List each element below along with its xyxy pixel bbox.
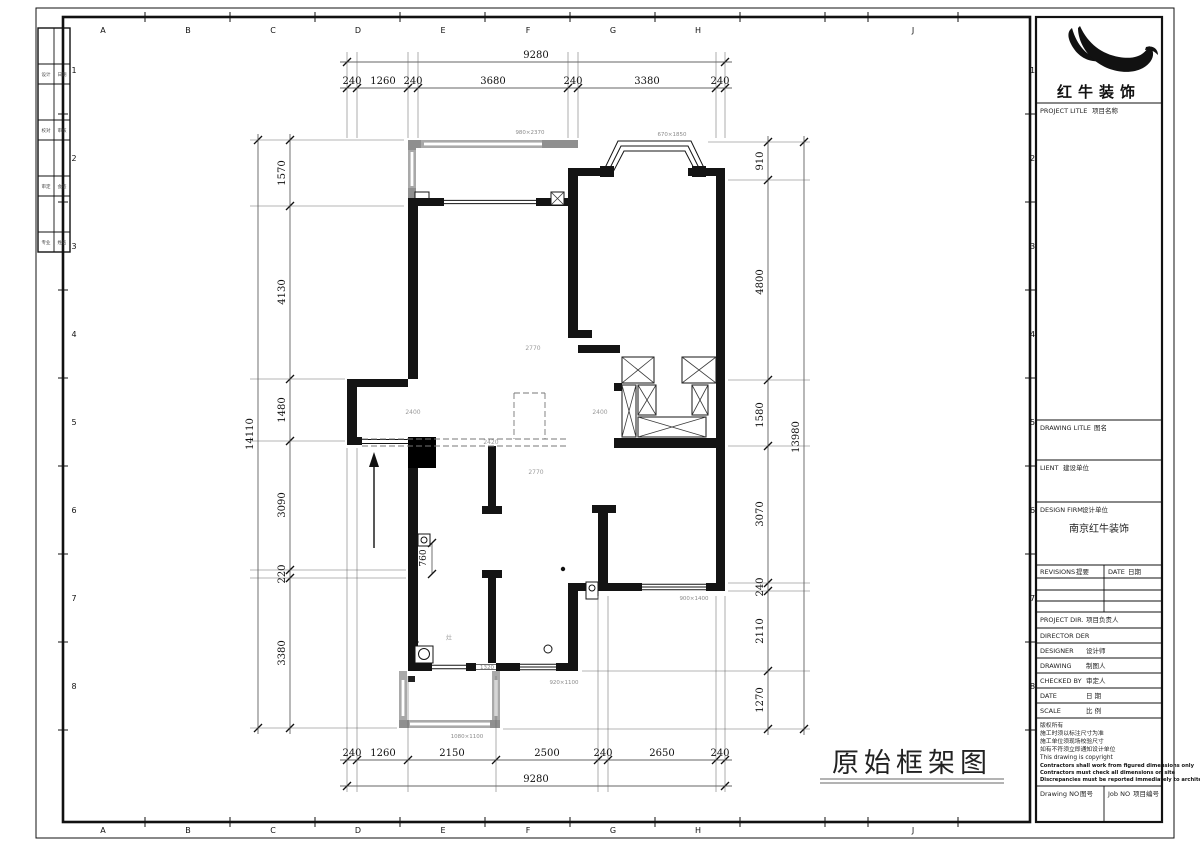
tb-label: Job NO xyxy=(1107,790,1130,798)
grid-numbers-left: 12345678 xyxy=(71,66,76,691)
signoff-cell: 校对 xyxy=(42,127,51,134)
beam-dashed-lines xyxy=(362,393,568,446)
window-label: 1080×1100 xyxy=(451,734,484,740)
entry-arrow-icon xyxy=(369,452,379,548)
tb-label: 制图人 xyxy=(1086,661,1106,670)
grid-letter: A xyxy=(100,826,106,835)
grid-number: 4 xyxy=(71,330,76,339)
small-block xyxy=(408,676,415,682)
signoff-cell: 专业 xyxy=(42,239,51,246)
grid-letters-bottom: A B C D E F G H J xyxy=(100,826,914,835)
copyright-line: Discrepancies must be reported immediate… xyxy=(1040,777,1200,783)
grid-letter: B xyxy=(185,26,191,35)
tb-label: LIENT xyxy=(1040,464,1059,472)
copyright-line: 施工单位须现场校验尺寸 xyxy=(1040,737,1104,745)
window-label: 980×2370 xyxy=(515,130,545,136)
tb-label: REVISIONS xyxy=(1040,568,1075,576)
copyright-line: 如有不符须立即通知设计单位 xyxy=(1040,745,1116,753)
dim-label: 240 xyxy=(710,76,729,87)
grid-letter: F xyxy=(526,826,531,835)
tb-label: DATE xyxy=(1108,568,1125,576)
tb-label: 比 例 xyxy=(1086,706,1101,715)
grid-letter: E xyxy=(440,26,445,35)
room-dim-label: 2770 xyxy=(528,469,543,476)
dim-label: 240 xyxy=(563,76,582,87)
dim-label: 3090 xyxy=(277,492,288,517)
grid-letters-top: A B C D E F G H J xyxy=(100,26,914,35)
tb-label: SCALE xyxy=(1040,707,1061,715)
tb-project-title-row: PROJECT LITLE 项目名称 xyxy=(1040,106,1119,115)
gas-meter-icon xyxy=(418,534,430,546)
concrete-column xyxy=(408,437,436,468)
grid-letter: A xyxy=(100,26,106,35)
room-dim-label: 2770 xyxy=(525,345,540,352)
dim-label: 240 xyxy=(755,577,766,596)
point-mark xyxy=(416,641,419,644)
room-dim-label: 2420 xyxy=(483,439,498,446)
grid-number: 5 xyxy=(71,418,76,427)
window-label: 920×1100 xyxy=(549,680,579,686)
sheet-borders xyxy=(36,8,1174,838)
dim-label: 910 xyxy=(755,151,766,170)
dim-label: 4800 xyxy=(755,269,766,294)
copyright-line: This drawing is copyright xyxy=(1039,755,1114,761)
duct-shaft xyxy=(614,357,716,437)
room-dim-label: 2400 xyxy=(592,409,607,416)
dim-label: 2650 xyxy=(649,748,674,759)
drawing-sheet: { "main_title": "原始框架图", "sheet": { "col… xyxy=(0,0,1200,844)
copyright-line: Contractors must check all dimensions on… xyxy=(1040,770,1176,776)
tb-label: 项目负责人 xyxy=(1086,615,1119,624)
tb-revisions-header: REVISIONS 提要 DATE 日期 xyxy=(1040,567,1142,576)
sink-icon xyxy=(415,646,433,663)
tb-label: 设计师 xyxy=(1086,646,1106,655)
tb-label: 日期 xyxy=(1128,568,1142,576)
tb-label: DRAWING xyxy=(1040,662,1072,670)
dim-label: 1270 xyxy=(755,687,766,712)
grid-number: 6 xyxy=(71,506,76,515)
dim-label: 2110 xyxy=(755,618,766,643)
tb-label: 图号 xyxy=(1080,790,1094,798)
grid-number: 4 xyxy=(1030,330,1035,339)
grid-letter: D xyxy=(355,826,361,835)
tb-label: 图名 xyxy=(1094,423,1107,432)
tb-label: 设计单位 xyxy=(1082,505,1109,514)
signoff-cell: 审核 xyxy=(58,127,67,134)
grid-letter: C xyxy=(270,826,276,835)
copyright-line: 施工时须以标注尺寸为准 xyxy=(1040,729,1104,737)
dim-label: 240 xyxy=(342,748,361,759)
copyright-line: 版权所有 xyxy=(1040,721,1063,729)
grid-number: 2 xyxy=(71,154,76,163)
meter-box-icon xyxy=(586,582,598,599)
dim-label: 240 xyxy=(593,748,612,759)
tb-label: 项目名称 xyxy=(1092,106,1119,115)
floor-drain-icon xyxy=(544,645,552,653)
tb-label: DATE xyxy=(1040,692,1057,700)
grid-number: 8 xyxy=(71,682,76,691)
grid-number: 7 xyxy=(71,594,76,603)
design-firm-name: 南京红牛装饰 xyxy=(1069,522,1129,535)
tb-label: DESIGN FIRM xyxy=(1040,506,1083,514)
room-dim-label: 2400 xyxy=(405,409,420,416)
tb-number-row: Drawing NO 图号 Job NO 项目编号 xyxy=(1040,789,1160,798)
title-block: 红牛装饰 PROJECT LITLE 项目名称 DRAWING LITLE 图名 xyxy=(1036,26,1200,822)
dim-label: 9280 xyxy=(523,774,548,785)
signoff-cell: 审定 xyxy=(42,183,51,190)
grid-ticks xyxy=(58,12,1035,827)
kitchen-mark: 灶 xyxy=(446,634,452,642)
floor-plan: 760 980×2370 670×1850 900×1400 920×1100 … xyxy=(245,50,810,792)
drawing-main-title: 原始框架图 xyxy=(820,748,1004,783)
dim-label: 1480 xyxy=(277,397,288,422)
page-title: 原始框架图 xyxy=(832,748,992,779)
tb-label: 建设单位 xyxy=(1063,463,1090,472)
dim-label: 240 xyxy=(342,76,361,87)
grid-letter: J xyxy=(911,826,914,835)
dim-label: 9280 xyxy=(523,50,548,61)
dim-label: 760 xyxy=(419,549,429,566)
grid-letter: B xyxy=(185,826,191,835)
dim-label: 240 xyxy=(710,748,729,759)
dimension-lines xyxy=(250,52,810,792)
tb-client-row: LIENT 建设单位 xyxy=(1040,463,1090,472)
dim-label: 3680 xyxy=(480,76,505,87)
grid-number: 2 xyxy=(1030,154,1035,163)
grid-number: 5 xyxy=(1030,418,1035,427)
point-mark xyxy=(561,567,565,571)
dim-label: 1580 xyxy=(755,402,766,427)
grid-letter: G xyxy=(610,26,616,35)
signoff-cell: 会签 xyxy=(58,183,67,190)
grid-letter: H xyxy=(695,26,701,35)
dim-label: 4130 xyxy=(277,279,288,304)
signoff-cell: 姓名 xyxy=(58,239,67,246)
plan-symbols: 760 xyxy=(369,452,598,682)
grid-letter: J xyxy=(911,26,914,35)
grid-number: 6 xyxy=(1030,506,1035,515)
tb-label: CHECKED BY xyxy=(1040,677,1082,685)
tb-label: 项目编号 xyxy=(1133,789,1160,798)
grid-letter: F xyxy=(526,26,531,35)
drawing-frame xyxy=(63,17,1030,822)
grid-number: 1 xyxy=(71,66,76,75)
tb-label: 日 期 xyxy=(1086,692,1102,700)
tb-label: DESIGNER xyxy=(1040,647,1074,655)
grid-letter: E xyxy=(440,826,445,835)
title-block-frame xyxy=(1036,17,1162,822)
redbull-logo-icon xyxy=(1068,26,1158,72)
dim-label: 1260 xyxy=(370,76,395,87)
window-label: 1320 xyxy=(480,665,494,671)
walls xyxy=(347,141,725,671)
dim-label: 13980 xyxy=(791,421,802,453)
tb-copyright: 版权所有 施工时须以标注尺寸为准 施工单位须现场校验尺寸 如有不符须立即通知设计… xyxy=(1039,721,1200,783)
signoff-cell: 设计 xyxy=(42,71,51,78)
tb-label: DIRECTOR DER xyxy=(1040,632,1090,640)
dim-label: 220 xyxy=(277,564,288,583)
dim-label: 3070 xyxy=(755,501,766,526)
tb-design-firm-row: DESIGN FIRM 设计单位 南京红牛装饰 xyxy=(1040,505,1129,535)
tb-label: PROJECT LITLE xyxy=(1040,107,1087,115)
dim-label: 3380 xyxy=(634,76,659,87)
grid-letter: G xyxy=(610,826,616,835)
window-label: 900×1400 xyxy=(679,596,709,602)
dim-label: 1570 xyxy=(277,160,288,185)
tb-label: PROJECT DIR. xyxy=(1040,616,1083,624)
dim-label: 1260 xyxy=(370,748,395,759)
window-label: 670×1850 xyxy=(657,132,687,138)
grid-letter: H xyxy=(695,826,701,835)
copyright-line: Contractors shall work from figured dime… xyxy=(1040,763,1195,769)
tb-label: Drawing NO xyxy=(1040,790,1079,798)
grid-letter: D xyxy=(355,26,361,35)
tb-staff-rows: PROJECT DIR. 项目负责人 DIRECTOR DER DESIGNER… xyxy=(1040,615,1119,715)
tb-label: 审定人 xyxy=(1086,676,1106,685)
brand-name: 红牛装饰 xyxy=(1057,83,1141,101)
tb-label: 提要 xyxy=(1076,567,1090,576)
grid-number: 3 xyxy=(71,242,76,251)
grid-number: 1 xyxy=(1030,66,1035,75)
dim-label: 2500 xyxy=(534,748,559,759)
flue-box-icon xyxy=(551,192,564,205)
dim-label: 14110 xyxy=(245,418,256,450)
grid-letter: C xyxy=(270,26,276,35)
dim-label: 240 xyxy=(403,76,422,87)
signoff-cell: 日期 xyxy=(58,72,67,78)
tb-label: DRAWING LITLE xyxy=(1040,424,1091,432)
signoff-strip: 设计 日期 校对 审核 审定 会签 专业 姓名 xyxy=(38,28,70,252)
grid-number: 7 xyxy=(1030,594,1035,603)
dim-label: 3380 xyxy=(277,640,288,665)
dim-label: 2150 xyxy=(439,748,464,759)
grid-number: 3 xyxy=(1030,242,1035,251)
tb-drawing-title-row: DRAWING LITLE 图名 xyxy=(1040,423,1107,432)
grid-number: 8 xyxy=(1030,682,1035,691)
